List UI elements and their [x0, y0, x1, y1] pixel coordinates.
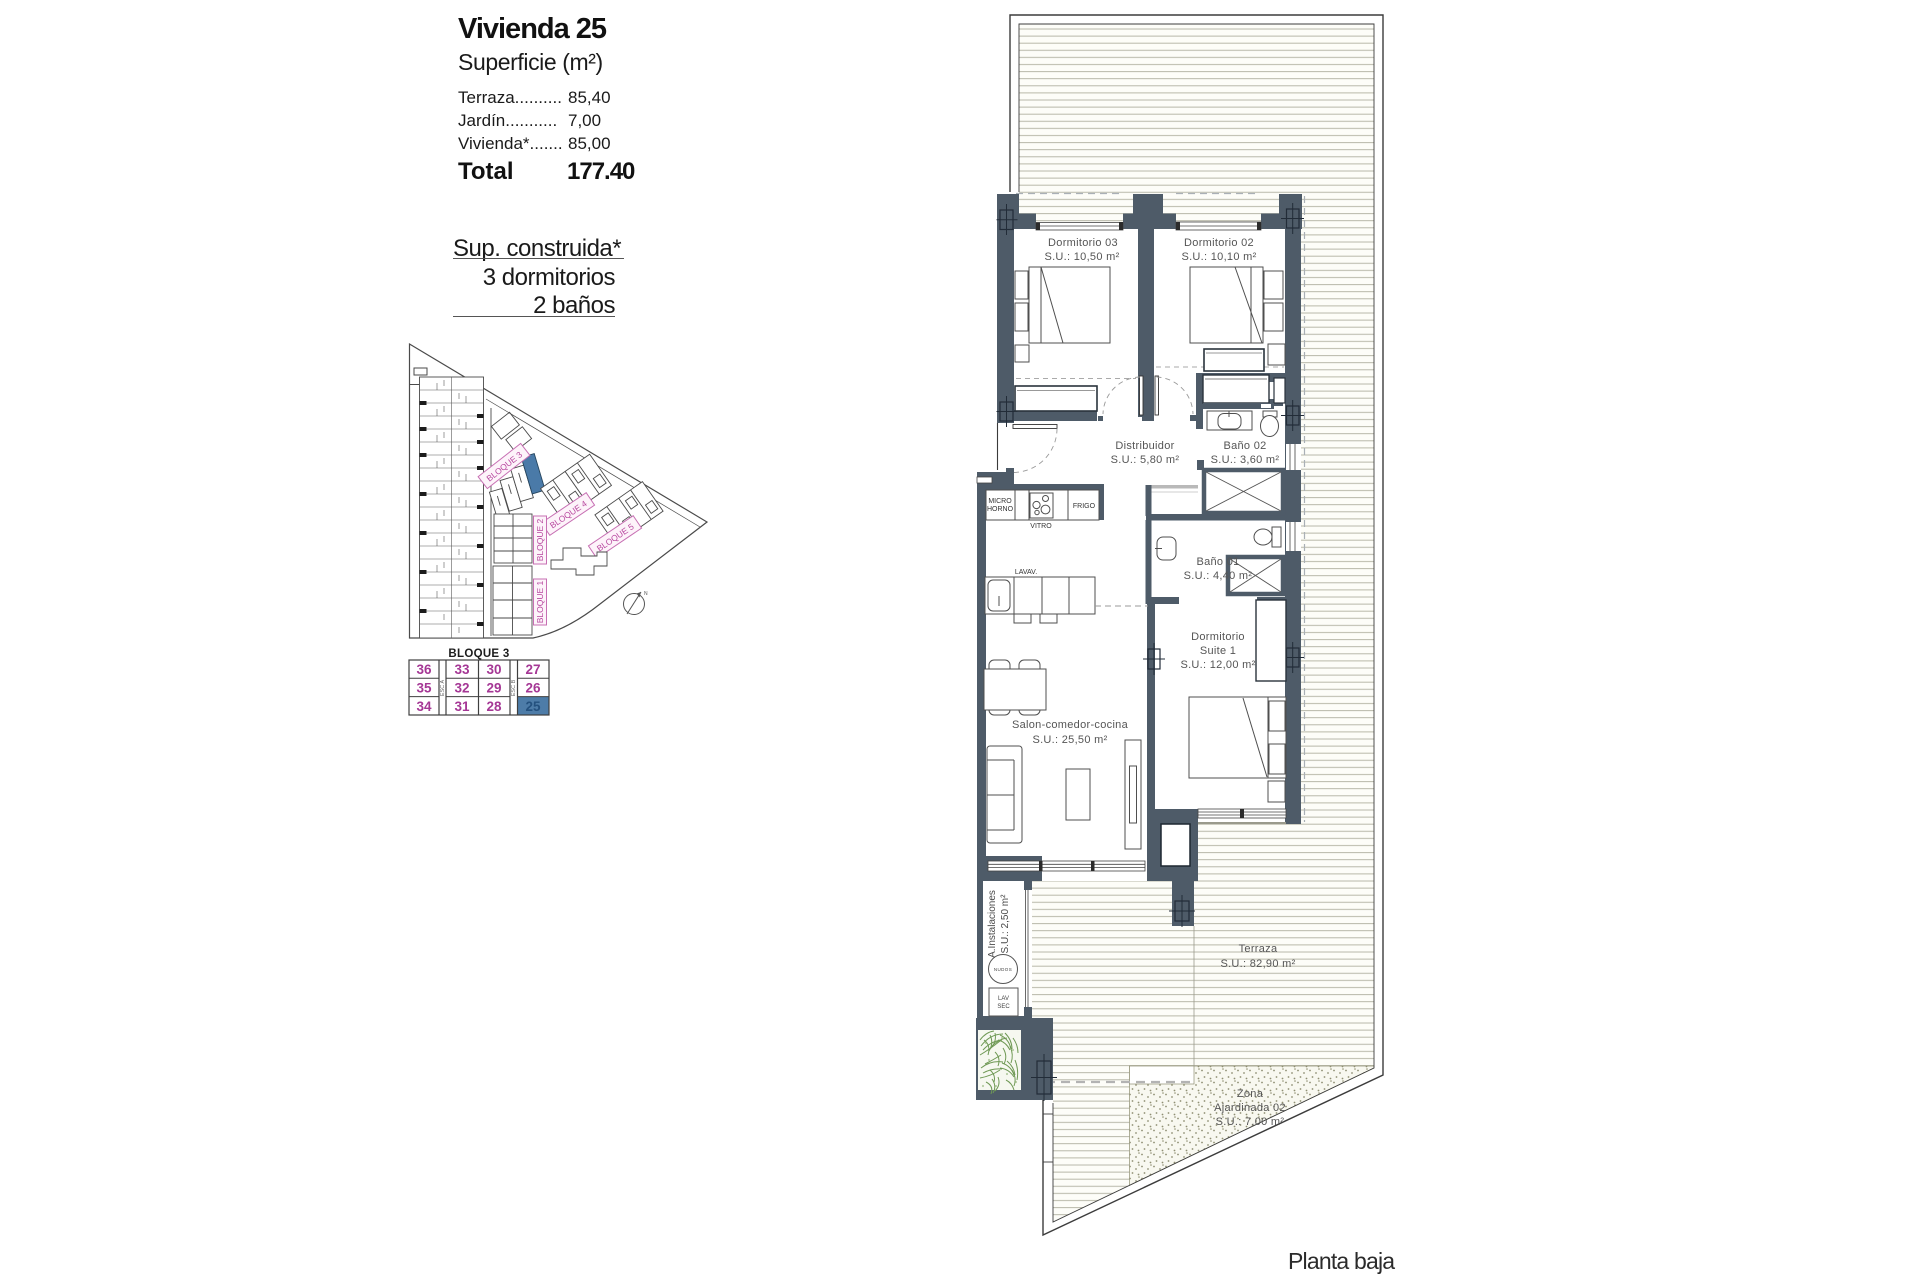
svg-text:S.U.: 82,90 m²: S.U.: 82,90 m²	[1220, 958, 1295, 970]
svg-text:28: 28	[486, 699, 502, 714]
svg-text:BLOQUE 1: BLOQUE 1	[535, 580, 545, 623]
svg-text:ESC B: ESC B	[511, 679, 517, 696]
svg-text:S.U.: 7,00 m²: S.U.: 7,00 m²	[1216, 1116, 1285, 1128]
svg-text:VITRO: VITRO	[1030, 523, 1052, 530]
svg-text:S.U.: 2,50 m²: S.U.: 2,50 m²	[1000, 894, 1011, 954]
svg-text:26: 26	[525, 681, 541, 696]
svg-text:NUDOS: NUDOS	[994, 967, 1012, 972]
svg-text:33: 33	[454, 662, 470, 677]
svg-text:35: 35	[416, 681, 432, 696]
svg-text:S.U.: 10,50 m²: S.U.: 10,50 m²	[1044, 251, 1119, 263]
svg-text:FRIGO: FRIGO	[1073, 503, 1096, 510]
svg-text:36: 36	[416, 662, 432, 677]
svg-text:34: 34	[416, 699, 432, 714]
svg-text:S.U.: 25,50 m²: S.U.: 25,50 m²	[1032, 734, 1107, 746]
svg-text:30: 30	[486, 662, 501, 677]
svg-text:Dormitorio 03: Dormitorio 03	[1048, 237, 1118, 249]
svg-text:S.U.: 3,60 m²: S.U.: 3,60 m²	[1211, 454, 1280, 466]
svg-text:32: 32	[454, 681, 469, 696]
svg-text:N: N	[644, 591, 648, 597]
svg-text:Baño 01: Baño 01	[1196, 556, 1239, 568]
svg-text:MICRO: MICRO	[988, 498, 1012, 505]
svg-text:S.U.: 5,80 m²: S.U.: 5,80 m²	[1111, 454, 1180, 466]
svg-text:HORNO: HORNO	[987, 506, 1014, 513]
svg-text:Baño 02: Baño 02	[1223, 440, 1266, 452]
svg-text:LAV: LAV	[998, 996, 1009, 1002]
svg-text:Distribuidor: Distribuidor	[1115, 440, 1174, 452]
svg-text:LAVAV.: LAVAV.	[1015, 569, 1037, 576]
svg-text:BLOQUE 3: BLOQUE 3	[448, 648, 509, 660]
svg-text:Dormitorio: Dormitorio	[1191, 631, 1245, 643]
svg-text:Dormitorio 02: Dormitorio 02	[1184, 237, 1254, 249]
svg-text:Salon-comedor-cocina: Salon-comedor-cocina	[1012, 719, 1129, 731]
svg-text:S.U.: 10,10 m²: S.U.: 10,10 m²	[1181, 251, 1256, 263]
svg-text:Terraza: Terraza	[1239, 943, 1278, 955]
svg-text:Ajardinada 02: Ajardinada 02	[1214, 1102, 1286, 1114]
svg-text:Zona: Zona	[1237, 1088, 1264, 1100]
svg-text:31: 31	[454, 699, 470, 714]
svg-text:S.U.: 4,40 m²: S.U.: 4,40 m²	[1184, 570, 1253, 582]
svg-text:27: 27	[525, 662, 540, 677]
svg-text:ESC A: ESC A	[440, 680, 446, 697]
svg-text:S.U.: 12,00 m²: S.U.: 12,00 m²	[1180, 659, 1255, 671]
svg-text:25: 25	[525, 699, 541, 714]
svg-text:SEC: SEC	[997, 1004, 1010, 1010]
svg-text:Suite 1: Suite 1	[1200, 645, 1236, 657]
svg-text:A.Instalaciones: A.Instalaciones	[987, 890, 998, 958]
svg-text:BLOQUE 2: BLOQUE 2	[535, 518, 545, 561]
svg-text:29: 29	[486, 681, 501, 696]
